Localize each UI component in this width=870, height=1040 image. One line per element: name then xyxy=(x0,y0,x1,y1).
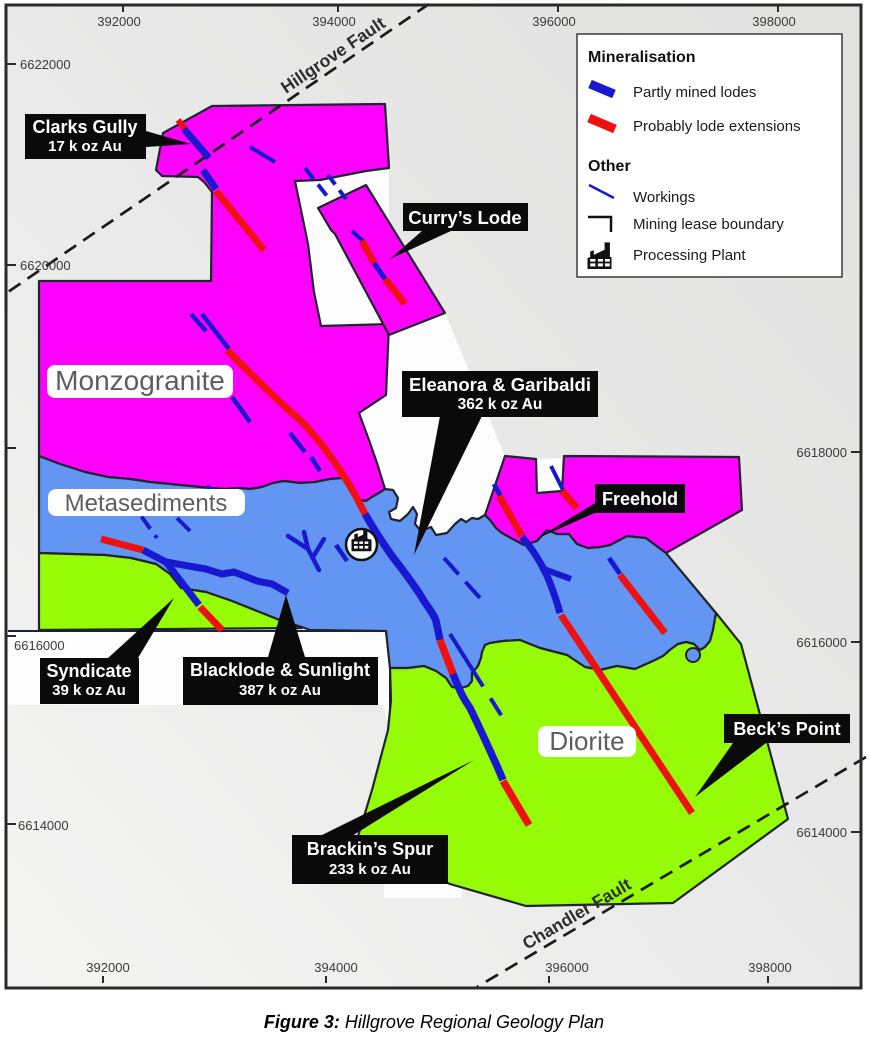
svg-text:Beck’s Point: Beck’s Point xyxy=(733,719,840,739)
svg-text:396000: 396000 xyxy=(545,960,588,975)
svg-text:Diorite: Diorite xyxy=(549,726,624,756)
svg-text:Metasediments: Metasediments xyxy=(65,490,228,517)
svg-text:Figure 3: Hillgrove Regional G: Figure 3: Hillgrove Regional Geology Pla… xyxy=(264,1012,604,1032)
svg-text:394000: 394000 xyxy=(314,960,357,975)
svg-text:387 k oz Au: 387 k oz Au xyxy=(239,682,321,699)
svg-text:6616000: 6616000 xyxy=(796,635,847,650)
svg-text:Clarks Gully: Clarks Gully xyxy=(32,117,137,137)
svg-text:6622000: 6622000 xyxy=(20,57,71,72)
svg-text:39 k oz Au: 39 k oz Au xyxy=(52,682,126,699)
svg-text:362 k oz Au: 362 k oz Au xyxy=(458,396,543,413)
svg-text:Other: Other xyxy=(588,158,631,175)
svg-text:233 k oz Au: 233 k oz Au xyxy=(329,861,411,878)
svg-text:Curry’s Lode: Curry’s Lode xyxy=(408,207,521,228)
svg-text:Freehold: Freehold xyxy=(602,489,678,509)
svg-text:6614000: 6614000 xyxy=(796,825,847,840)
svg-text:398000: 398000 xyxy=(752,14,795,29)
svg-text:Brackin’s Spur: Brackin’s Spur xyxy=(307,839,433,859)
svg-text:Mineralisation: Mineralisation xyxy=(588,49,696,66)
svg-text:392000: 392000 xyxy=(86,960,129,975)
svg-text:Blacklode & Sunlight: Blacklode & Sunlight xyxy=(190,660,370,680)
svg-text:Mining lease boundary: Mining lease boundary xyxy=(633,216,784,233)
svg-text:392000: 392000 xyxy=(97,14,140,29)
svg-text:6616000: 6616000 xyxy=(14,638,65,653)
svg-text:Processing Plant: Processing Plant xyxy=(633,247,746,264)
svg-text:Workings: Workings xyxy=(633,189,695,206)
svg-text:6618000: 6618000 xyxy=(796,445,847,460)
svg-text:6620000: 6620000 xyxy=(20,258,71,273)
svg-text:Partly mined lodes: Partly mined lodes xyxy=(633,84,756,101)
svg-text:Probably lode extensions: Probably lode extensions xyxy=(633,118,801,135)
svg-text:398000: 398000 xyxy=(748,960,791,975)
svg-text:Monzogranite: Monzogranite xyxy=(55,365,225,396)
svg-text:Syndicate: Syndicate xyxy=(46,661,131,681)
svg-text:396000: 396000 xyxy=(532,14,575,29)
svg-text:6614000: 6614000 xyxy=(18,818,69,833)
svg-text:17 k oz Au: 17 k oz Au xyxy=(48,138,122,155)
svg-text:Eleanora & Garibaldi: Eleanora & Garibaldi xyxy=(409,374,591,395)
svg-text:394000: 394000 xyxy=(312,14,355,29)
